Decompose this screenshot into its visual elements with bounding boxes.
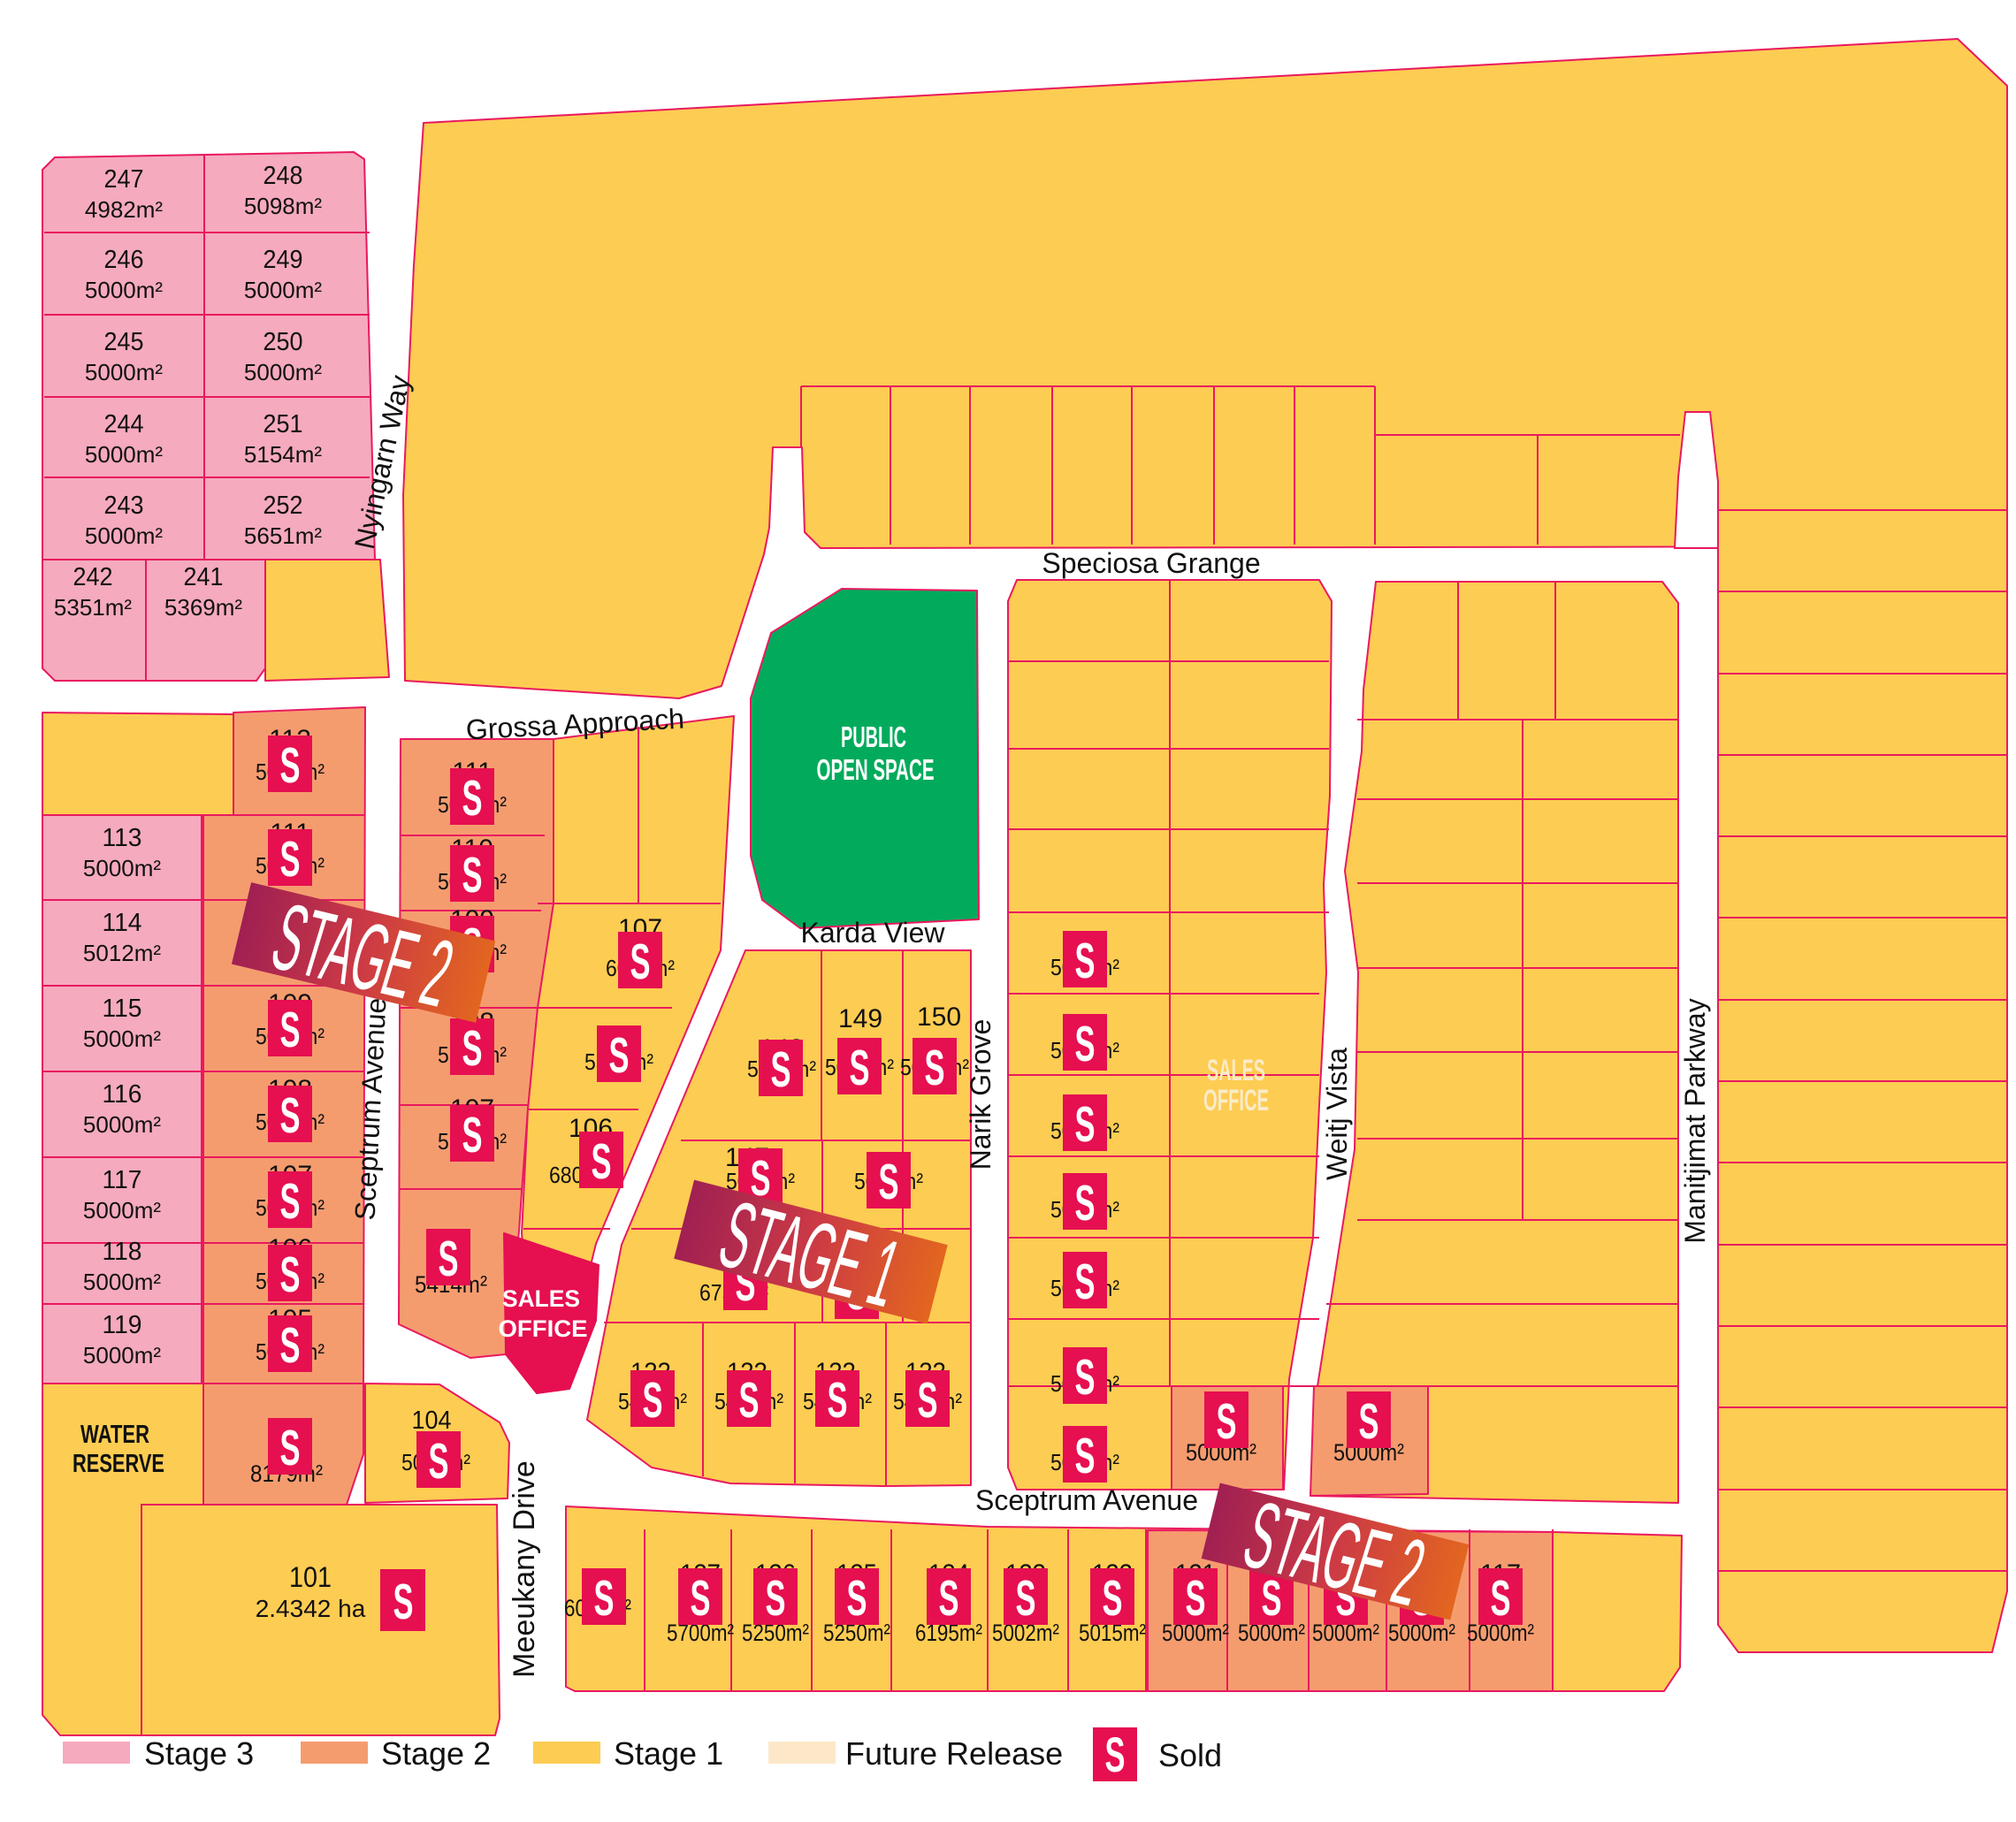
svg-text:246: 246	[104, 246, 144, 274]
svg-text:WATER: WATER	[80, 1421, 149, 1449]
svg-text:Stage 3: Stage 3	[144, 1735, 254, 1772]
svg-text:243: 243	[104, 492, 144, 520]
svg-text:S: S	[771, 1041, 791, 1098]
svg-text:S: S	[280, 1420, 301, 1476]
svg-text:5000m²: 5000m²	[244, 359, 322, 385]
svg-text:5000m²: 5000m²	[85, 359, 163, 385]
svg-text:SALES: SALES	[1207, 1054, 1265, 1087]
svg-text:S: S	[462, 1020, 483, 1077]
svg-text:5651m²: 5651m²	[244, 522, 322, 549]
svg-text:Weitj Vista: Weitj Vista	[1321, 1048, 1353, 1180]
svg-text:S: S	[1105, 1727, 1126, 1782]
svg-text:S: S	[1359, 1393, 1379, 1450]
svg-text:2.4342 ha: 2.4342 ha	[256, 1595, 366, 1622]
svg-text:5000m²: 5000m²	[85, 441, 163, 468]
svg-text:5000m²: 5000m²	[83, 1269, 161, 1295]
svg-text:S: S	[691, 1570, 711, 1627]
svg-text:5000m²: 5000m²	[83, 1111, 161, 1138]
svg-text:118: 118	[103, 1238, 142, 1266]
svg-text:S: S	[429, 1433, 449, 1490]
svg-text:OFFICE: OFFICE	[499, 1315, 588, 1342]
svg-text:5012m²: 5012m²	[83, 940, 161, 966]
svg-text:5000m²: 5000m²	[83, 1342, 161, 1368]
svg-text:114: 114	[103, 909, 142, 937]
svg-text:S: S	[393, 1574, 414, 1630]
svg-text:S: S	[1075, 933, 1096, 989]
svg-text:Stage 2: Stage 2	[381, 1735, 491, 1772]
svg-text:S: S	[462, 1107, 483, 1163]
svg-text:249: 249	[263, 246, 303, 274]
svg-text:PUBLIC: PUBLIC	[841, 720, 906, 753]
svg-text:244: 244	[104, 410, 144, 438]
svg-text:OFFICE: OFFICE	[1203, 1084, 1269, 1117]
svg-text:251: 251	[263, 410, 303, 438]
svg-text:S: S	[925, 1040, 945, 1096]
svg-text:S: S	[462, 770, 483, 827]
svg-text:S: S	[1075, 1016, 1096, 1072]
svg-text:104: 104	[412, 1407, 452, 1435]
svg-text:150: 150	[917, 1002, 961, 1032]
svg-text:Speciosa Grange: Speciosa Grange	[1042, 547, 1260, 579]
svg-text:5000m²: 5000m²	[85, 277, 163, 303]
svg-text:S: S	[280, 1173, 301, 1230]
svg-text:5154m²: 5154m²	[244, 441, 322, 468]
svg-text:S: S	[609, 1027, 630, 1084]
svg-text:115: 115	[103, 995, 142, 1023]
svg-text:245: 245	[104, 328, 144, 356]
svg-text:250: 250	[263, 328, 303, 356]
svg-text:116: 116	[103, 1080, 142, 1109]
svg-text:Sold: Sold	[1158, 1737, 1222, 1773]
svg-text:252: 252	[263, 492, 303, 520]
svg-text:S: S	[594, 1570, 615, 1627]
svg-text:S: S	[1075, 1175, 1096, 1231]
svg-text:S: S	[1103, 1570, 1123, 1627]
svg-text:S: S	[280, 1246, 301, 1303]
svg-text:RESERVE: RESERVE	[73, 1450, 164, 1478]
svg-text:S: S	[1491, 1570, 1511, 1627]
svg-text:S: S	[939, 1570, 959, 1627]
svg-text:5369m²: 5369m²	[164, 594, 242, 621]
svg-text:S: S	[1186, 1570, 1206, 1627]
svg-text:S: S	[1217, 1393, 1237, 1450]
svg-text:S: S	[828, 1372, 848, 1429]
svg-text:101: 101	[289, 1561, 332, 1593]
svg-text:SALES: SALES	[502, 1285, 580, 1312]
svg-text:S: S	[280, 1317, 301, 1374]
svg-text:S: S	[847, 1570, 867, 1627]
svg-text:S: S	[630, 934, 651, 990]
svg-text:5351m²: 5351m²	[54, 594, 132, 621]
svg-text:117: 117	[103, 1166, 142, 1194]
svg-text:242: 242	[73, 563, 113, 591]
svg-text:S: S	[1075, 1349, 1096, 1406]
svg-text:S: S	[280, 1002, 301, 1058]
svg-text:Sceptrum Avenue: Sceptrum Avenue	[975, 1484, 1198, 1516]
svg-text:5098m²: 5098m²	[244, 193, 322, 219]
svg-text:S: S	[280, 1087, 301, 1144]
svg-text:119: 119	[103, 1311, 142, 1339]
svg-text:S: S	[879, 1154, 899, 1210]
svg-text:4982m²: 4982m²	[85, 196, 163, 223]
svg-text:S: S	[280, 831, 301, 888]
svg-text:241: 241	[184, 563, 224, 591]
svg-text:149: 149	[838, 1004, 882, 1033]
svg-text:5000m²: 5000m²	[244, 277, 322, 303]
svg-text:Manitjimat Parkway: Manitjimat Parkway	[1679, 998, 1711, 1243]
svg-text:S: S	[1075, 1096, 1096, 1153]
svg-text:S: S	[1075, 1254, 1096, 1310]
svg-text:113: 113	[103, 824, 142, 852]
svg-text:Meeukany Drive: Meeukany Drive	[508, 1460, 541, 1678]
svg-text:5000m²: 5000m²	[83, 855, 161, 881]
svg-text:S: S	[1075, 1428, 1096, 1484]
svg-text:Narik Grove: Narik Grove	[965, 1019, 997, 1170]
svg-text:Karda View: Karda View	[800, 917, 945, 949]
svg-text:S: S	[850, 1040, 870, 1096]
svg-text:5000m²: 5000m²	[85, 522, 163, 549]
svg-text:247: 247	[104, 165, 144, 194]
svg-text:OPEN SPACE: OPEN SPACE	[817, 753, 935, 786]
svg-text:S: S	[918, 1372, 938, 1429]
svg-text:5000m²: 5000m²	[83, 1025, 161, 1052]
svg-text:Future Release: Future Release	[845, 1735, 1063, 1772]
svg-text:S: S	[1016, 1570, 1036, 1627]
svg-text:248: 248	[263, 162, 303, 190]
svg-text:S: S	[462, 847, 483, 903]
svg-text:S: S	[592, 1133, 612, 1190]
svg-text:S: S	[766, 1570, 786, 1627]
svg-text:5000m²: 5000m²	[83, 1197, 161, 1224]
svg-text:S: S	[439, 1231, 459, 1287]
svg-text:S: S	[643, 1372, 663, 1429]
svg-text:Stage 1: Stage 1	[614, 1735, 723, 1772]
svg-text:S: S	[280, 737, 301, 794]
svg-text:S: S	[739, 1372, 760, 1429]
